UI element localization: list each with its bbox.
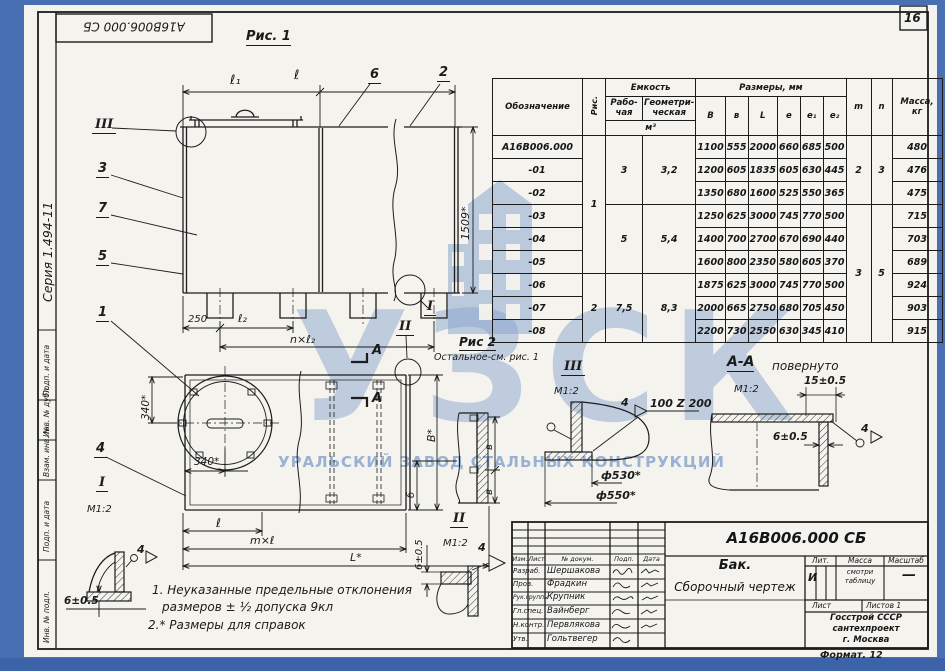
title-block-mass-value-1: смотри: [838, 569, 882, 577]
col-header-n: n: [871, 79, 892, 136]
fig2-linework: [168, 353, 488, 513]
format-note: Формат. 12: [820, 651, 883, 661]
table-cell: 730: [725, 320, 748, 343]
title-block-name-prov: Фрадкин: [547, 580, 587, 589]
detail-II-scale: М1:2: [443, 539, 468, 550]
fig2-callout-4: 4: [94, 442, 107, 458]
table-cell: 2000: [696, 297, 725, 320]
title-block-name-rukgruppy: Крупник: [547, 593, 585, 602]
col-header-m: m: [846, 79, 871, 136]
col-header-mass: Масса,кг: [892, 79, 942, 136]
table-cell: 1875: [696, 274, 725, 297]
table-cell: 525: [777, 182, 800, 205]
title-block-role-prov: Пров.: [513, 581, 533, 589]
detail-III-dim-530: ф530*: [601, 470, 641, 482]
title-block-col-podp: Подп.: [610, 556, 638, 563]
table-cell: 500: [823, 274, 846, 297]
table-cell: 689: [892, 251, 942, 274]
title-block-lit-label: Лит.: [805, 557, 836, 565]
fig1-callout-3: 3: [96, 162, 109, 178]
fig1-callout-1: 1: [96, 306, 109, 322]
table-cell: 924: [892, 274, 942, 297]
table-cell: -03: [493, 205, 583, 228]
col-header-B: В: [696, 97, 725, 136]
table-cell: 3: [871, 136, 892, 205]
detail-I-dim-6: 6±0.5: [64, 596, 99, 607]
table-cell: 630: [800, 159, 823, 182]
fig1-marker-II: II: [396, 320, 414, 336]
detail-III-scale: М1:2: [554, 387, 579, 398]
fig1-dim-l1: ℓ₁: [230, 74, 241, 88]
page-number: 16: [904, 12, 921, 25]
fig1-dim-n-l2: n×ℓ₂: [290, 334, 315, 346]
table-cell: 5: [606, 205, 643, 274]
margin-label-podp-data-2: Подп. и дата: [43, 501, 51, 552]
detail-II-linework: [421, 545, 505, 616]
table-cell: 5: [871, 205, 892, 343]
table-cell: 3,2: [643, 136, 696, 205]
title-block-sheet-label: Лист: [812, 602, 831, 610]
fig2-dim-340-vertical: 340*: [141, 395, 152, 420]
title-block-lit-value: И: [808, 572, 817, 584]
table-cell: -05: [493, 251, 583, 274]
table-cell: 665: [725, 297, 748, 320]
fig1-dim-height: 1509*: [460, 207, 472, 241]
table-cell: 915: [892, 320, 942, 343]
table-cell: 680: [777, 297, 800, 320]
table-cell: -07: [493, 297, 583, 320]
table-cell: 580: [777, 251, 800, 274]
title-block-col-data: Дата: [638, 556, 665, 563]
title-block-role-razrab: Разраб.: [513, 568, 541, 576]
fig1-caption: Рис. 1: [246, 30, 291, 46]
title-block-col-izm: Изм.: [512, 556, 528, 563]
title-block-col-list: Лист: [528, 556, 545, 563]
table-cell: 1400: [696, 228, 725, 251]
table-cell: 670: [777, 228, 800, 251]
margin-label-inv-podl: Инв. № подл.: [43, 591, 51, 643]
note-line-3: 2.* Размеры для справок: [148, 619, 306, 632]
fig1-callout-7: 7: [96, 202, 109, 218]
table-cell: 745: [777, 274, 800, 297]
table-cell: 690: [800, 228, 823, 251]
table-cell: 445: [823, 159, 846, 182]
table-cell: 1: [583, 136, 606, 274]
detail-III-weld-number: 4: [621, 397, 629, 409]
fig2-caption-note: Остальное-см. рис. 1: [434, 353, 539, 363]
fig2-dim-b2: в: [485, 489, 496, 495]
col-header-dimensions: Размеры, мм: [696, 79, 846, 97]
table-cell: 2: [583, 274, 606, 343]
table-cell: 2350: [748, 251, 777, 274]
title-block-name-razrab: Шершакова: [547, 567, 600, 576]
table-cell: А16В006.000: [493, 136, 583, 159]
title-block-role-nkontr: Н.контр.: [513, 622, 544, 630]
col-header-L: L: [748, 97, 777, 136]
table-cell: 3: [606, 136, 643, 205]
table-cell: 345: [800, 320, 823, 343]
fig2-dim-340-horizontal: 340*: [194, 457, 219, 468]
top-stamp-doc-number: А16В006.000 СБ: [60, 20, 208, 33]
table-cell: 625: [725, 205, 748, 228]
col-header-e2: е₂: [823, 97, 846, 136]
title-block-org-line-2: сантехпроект: [806, 625, 926, 634]
table-cell: 500: [823, 205, 846, 228]
table-cell: 1600: [696, 251, 725, 274]
margin-label-vzam-inv: Взам. инв. №: [43, 426, 51, 477]
table-row: А16В006.000133,2110055520006606855002348…: [493, 136, 943, 159]
col-header-fig: Рис.: [583, 79, 606, 136]
fig2-dim-L: L*: [350, 552, 362, 564]
col-header-e1: е₁: [800, 97, 823, 136]
col-header-capacity-working: Рабо-чая: [606, 97, 643, 121]
detail-II-marker: II: [450, 512, 468, 528]
table-cell: 2: [846, 136, 871, 205]
table-cell: 2200: [696, 320, 725, 343]
fig2-scale-I: М1:2: [87, 505, 112, 516]
table-cell: -01: [493, 159, 583, 182]
table-cell: 2550: [748, 320, 777, 343]
title-block-name-glspec: Вайнберг: [547, 607, 589, 616]
table-cell: 770: [800, 205, 823, 228]
title-block-name-nkontr: Первлякова: [547, 621, 600, 630]
note-line-1: 1. Неуказанные предельные отклонения: [152, 584, 412, 597]
detail-AA-title-note: повернуто: [772, 360, 839, 373]
fig2-caption: Рис 2: [459, 336, 496, 351]
fig2-marker-I: I: [96, 476, 108, 492]
title-block-scale-value: —: [896, 568, 922, 583]
fig1-marker-I: I: [424, 300, 436, 316]
table-cell: 605: [725, 159, 748, 182]
parts-table-body: А16В006.000133,2110055520006606855002348…: [493, 136, 943, 343]
table-cell: -02: [493, 182, 583, 205]
note-line-2: размеров ± ½ допуска 9кл: [162, 601, 333, 614]
table-cell: 365: [823, 182, 846, 205]
col-header-capacity: Емкость: [606, 79, 696, 97]
title-block-doc-number: А16В006.000 СБ: [665, 530, 928, 547]
table-cell: -04: [493, 228, 583, 251]
table-cell: 2000: [748, 136, 777, 159]
series-label: Серия 1.494-11: [41, 202, 54, 302]
table-cell: 2750: [748, 297, 777, 320]
table-cell: 3000: [748, 205, 777, 228]
detail-III-dim-550: ф550*: [596, 490, 636, 502]
fig2-section-label-top: А: [372, 344, 382, 358]
table-cell: 605: [800, 251, 823, 274]
fig2-dim-b-small: б: [407, 492, 418, 498]
detail-III-weld-spec: 100 Z 200: [650, 398, 712, 410]
title-block-scale-label: Масштаб: [884, 557, 928, 565]
fig1-dim-250: 250: [188, 315, 207, 326]
table-cell: 660: [777, 136, 800, 159]
detail-AA-weld-number: 4: [861, 423, 869, 435]
table-cell: 680: [725, 182, 748, 205]
title-block-org-line-1: Госстрой СССР: [806, 614, 926, 623]
table-cell: -08: [493, 320, 583, 343]
table-cell: 1250: [696, 205, 725, 228]
detail-II-dim-6: 6±0.5: [415, 539, 426, 570]
table-cell: 8,3: [643, 274, 696, 343]
title-block-mass-label: Масса: [836, 557, 884, 565]
fig2-dim-l: ℓ: [216, 517, 221, 530]
detail-AA-scale: М1:2: [734, 385, 759, 396]
table-cell: 1600: [748, 182, 777, 205]
table-cell: 630: [777, 320, 800, 343]
detail-II-weld-number: 4: [478, 542, 486, 554]
fig2-dimensions: [106, 375, 500, 570]
table-cell: 476: [892, 159, 942, 182]
table-cell: 770: [800, 274, 823, 297]
table-cell: 550: [800, 182, 823, 205]
drawing-sheet: УЗСК УРАЛЬСКИЙ ЗАВОД СТАЛЬНЫХ КОНСТРУКЦИ…: [0, 0, 945, 671]
table-cell: 480: [892, 136, 942, 159]
detail-AA-dim-15: 15±0.5: [804, 376, 846, 387]
table-cell: 440: [823, 228, 846, 251]
col-header-e: е: [777, 97, 800, 136]
parts-table: Обозначение Рис. Емкость Размеры, мм m n…: [492, 78, 943, 343]
table-cell: 705: [800, 297, 823, 320]
table-cell: 1200: [696, 159, 725, 182]
col-header-designation: Обозначение: [493, 79, 583, 136]
title-block-sheets-label: Листов 1: [866, 602, 901, 610]
table-row: -0355,41250625300074577050035715: [493, 205, 943, 228]
fig1-linework: [176, 110, 462, 385]
title-block-mass-value-2: таблицу: [838, 578, 882, 586]
table-cell: 1835: [748, 159, 777, 182]
table-cell: 625: [725, 274, 748, 297]
table-cell: 605: [777, 159, 800, 182]
col-header-capacity-geometric: Геометри-ческая: [643, 97, 696, 121]
table-cell: 1100: [696, 136, 725, 159]
fig2-dim-B: В*: [426, 429, 438, 442]
fig1-dim-l: ℓ: [294, 69, 299, 83]
table-cell: 410: [823, 320, 846, 343]
table-cell: 3000: [748, 274, 777, 297]
fig2-section-label-bottom: А: [372, 392, 382, 406]
detail-AA-title: А-А: [727, 355, 754, 372]
table-cell: 500: [823, 136, 846, 159]
table-cell: 5,4: [643, 205, 696, 274]
fig1-callout-2: 2: [437, 66, 450, 82]
fig1-dimensions: [111, 84, 478, 396]
detail-AA-dim-6: 6±0.5: [773, 432, 808, 443]
title-block-role-utv: Утв.: [513, 636, 528, 644]
fig1-callout-5: 5: [96, 250, 109, 266]
table-cell: 1350: [696, 182, 725, 205]
table-cell: 475: [892, 182, 942, 205]
table-cell: 700: [725, 228, 748, 251]
detail-I-linework: [66, 551, 157, 617]
title-block-doc-type: Сборочный чертеж: [665, 581, 805, 594]
table-cell: 685: [800, 136, 823, 159]
detail-I-weld-number: 4: [137, 544, 145, 556]
title-block-col-ndokum: № докум.: [545, 556, 610, 563]
table-cell: 3: [846, 205, 871, 343]
table-cell: 703: [892, 228, 942, 251]
table-cell: 2700: [748, 228, 777, 251]
title-block-role-rukgruppy: Рук.группы: [513, 595, 549, 602]
table-cell: 7,5: [606, 274, 643, 343]
table-cell: 715: [892, 205, 942, 228]
table-cell: 800: [725, 251, 748, 274]
table-cell: 555: [725, 136, 748, 159]
table-cell: 745: [777, 205, 800, 228]
table-cell: 370: [823, 251, 846, 274]
title-block-product-name: Бак.: [665, 559, 805, 573]
fig2-dim-b1: в: [485, 444, 496, 450]
table-cell: -06: [493, 274, 583, 297]
title-block-org-line-3: г. Москва: [806, 636, 926, 645]
fig1-marker-III: III: [92, 118, 116, 134]
fig1-callout-6: 6: [368, 68, 381, 84]
detail-III-marker: III: [561, 360, 585, 376]
col-header-b: в: [725, 97, 748, 136]
fig2-dim-m-l: m×ℓ: [250, 535, 274, 547]
title-block-role-glspec: Гл.спец.: [513, 608, 543, 616]
table-cell: 450: [823, 297, 846, 320]
fig1-dim-l2: ℓ₂: [238, 313, 247, 325]
title-block-name-utv: Гольтвегер: [547, 635, 598, 644]
table-cell: 903: [892, 297, 942, 320]
col-header-capacity-units: м³: [606, 121, 696, 136]
